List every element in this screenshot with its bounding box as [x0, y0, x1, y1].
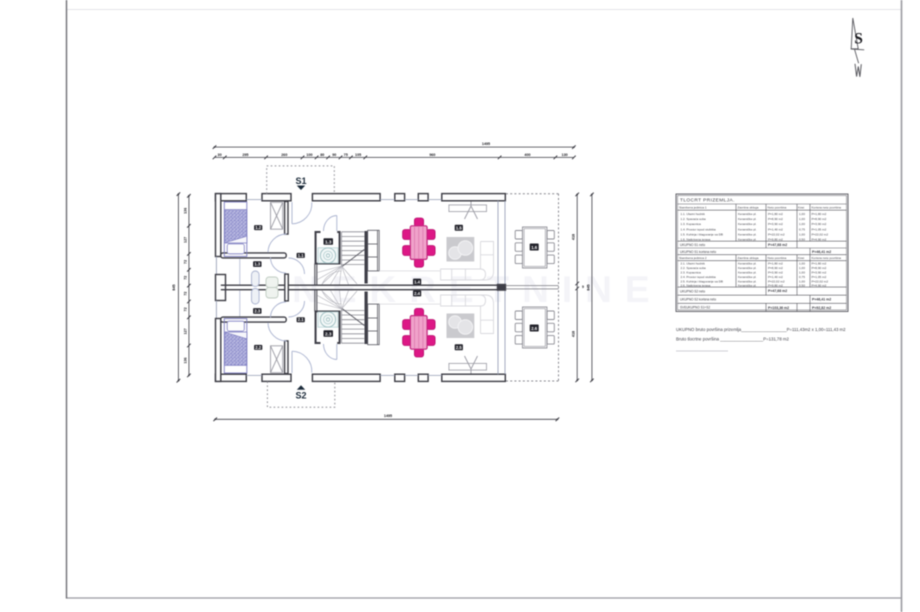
svg-text:1.5: 1.5	[456, 225, 462, 230]
svg-text:Keramičke pl.: Keramičke pl.	[738, 227, 757, 231]
svg-text:P=8,90 m2: P=8,90 m2	[812, 217, 827, 221]
svg-text:P=1,05 m2: P=1,05 m2	[812, 227, 827, 231]
svg-text:72: 72	[183, 292, 187, 296]
svg-text:P=9,80 m2: P=9,80 m2	[768, 284, 783, 288]
svg-text:960: 960	[429, 153, 435, 157]
svg-text:260: 260	[281, 153, 287, 157]
svg-text:418: 418	[572, 234, 576, 240]
svg-text:105: 105	[355, 153, 361, 157]
svg-text:72: 72	[183, 276, 187, 280]
svg-text:1.2: 1.2	[255, 225, 261, 230]
svg-text:P=1,05 m2: P=1,05 m2	[812, 275, 827, 279]
svg-text:2.6: 2.6	[531, 326, 537, 331]
svg-text:UKUPNO S2 neto: UKUPNO S2 neto	[680, 289, 705, 293]
svg-text:127: 127	[183, 237, 187, 243]
svg-text:2.2. Spavaća soba: 2.2. Spavaća soba	[681, 266, 707, 270]
svg-text:136: 136	[183, 208, 187, 214]
svg-text:2.5. Kuhinja i blagovanje sa D: 2.5. Kuhinja i blagovanje sa DB	[681, 279, 723, 283]
svg-text:P=47,68 m2: P=47,68 m2	[768, 243, 787, 247]
svg-text:100: 100	[306, 153, 312, 157]
svg-text:UKUPNO S1 neto: UKUPNO S1 neto	[680, 243, 705, 247]
svg-text:P=3,90 m2: P=3,90 m2	[812, 271, 827, 275]
svg-text:Keramičke pl.: Keramičke pl.	[738, 266, 757, 270]
svg-text:1.2. Spavaća soba: 1.2. Spavaća soba	[681, 217, 707, 221]
svg-text:1.5. Kuhinja i blagovanje sa D: 1.5. Kuhinja i blagovanje sa DB	[681, 233, 723, 237]
svg-text:UKUPNO S2 korisna neto: UKUPNO S2 korisna neto	[680, 297, 716, 301]
svg-text:UKUPNO S1 korisna neto: UKUPNO S1 korisna neto	[680, 250, 716, 254]
svg-text:1495: 1495	[384, 414, 392, 418]
svg-text:845: 845	[172, 284, 176, 290]
svg-text:P=46,41 m2: P=46,41 m2	[812, 298, 831, 302]
svg-text:1,00: 1,00	[799, 212, 805, 216]
svg-text:130: 130	[562, 153, 568, 157]
svg-text:Keramičke pl.: Keramičke pl.	[738, 284, 757, 288]
svg-text:80: 80	[320, 153, 324, 157]
svg-text:418: 418	[572, 331, 576, 337]
svg-text:2.3: 2.3	[325, 331, 332, 336]
svg-text:Završna obloga: Završna obloga	[738, 205, 759, 209]
svg-text:1,00: 1,00	[799, 279, 805, 283]
svg-text:9: 9	[582, 285, 584, 289]
svg-text:P=1,80 m2: P=1,80 m2	[768, 262, 783, 266]
svg-text:S1: S1	[295, 176, 306, 186]
svg-text:845: 845	[586, 284, 590, 290]
svg-text:P=9,80 m2: P=9,80 m2	[768, 238, 783, 242]
svg-text:2.2: 2.2	[255, 345, 261, 350]
svg-text:Stambena jedinica 1: Stambena jedinica 1	[679, 205, 707, 209]
svg-text:Korisna neto površina: Korisna neto površina	[812, 256, 842, 260]
svg-text:UKUPNO bruto površina prizemlj: UKUPNO bruto površina prizemlja_________…	[676, 327, 846, 332]
svg-text:P=92,82 m2: P=92,82 m2	[812, 306, 831, 310]
svg-text:136: 136	[183, 357, 187, 363]
svg-text:Kzat: Kzat	[798, 205, 804, 209]
svg-text:1.3: 1.3	[325, 239, 332, 244]
svg-text:P=3,90 m2: P=3,90 m2	[812, 222, 827, 226]
svg-text:1.1. Ulazni hodnik: 1.1. Ulazni hodnik	[681, 212, 706, 216]
svg-text:1,00: 1,00	[799, 271, 805, 275]
svg-text:P=8,90 m2: P=8,90 m2	[768, 266, 783, 270]
svg-text:Završna obloga: Završna obloga	[738, 256, 759, 260]
svg-text:0,75: 0,75	[799, 227, 805, 231]
svg-text:P=22,02 m2: P=22,02 m2	[768, 279, 785, 283]
svg-text:1,00: 1,00	[799, 233, 805, 237]
svg-text:1,00: 1,00	[799, 266, 805, 270]
svg-text:400: 400	[524, 153, 530, 157]
svg-text:S: S	[854, 31, 863, 48]
svg-text:Keramičke pl.: Keramičke pl.	[738, 222, 757, 226]
svg-text:P=103,36 m2: P=103,36 m2	[768, 306, 789, 310]
svg-text:P=1,80 m2: P=1,80 m2	[812, 212, 827, 216]
svg-text:Keramičke pl.: Keramičke pl.	[738, 212, 757, 216]
svg-text:72: 72	[183, 260, 187, 264]
svg-text:127: 127	[183, 328, 187, 334]
svg-text:Korisna neto površina: Korisna neto površina	[812, 205, 842, 209]
svg-text:P=46,41 m2: P=46,41 m2	[812, 250, 831, 254]
svg-text:1.1: 1.1	[298, 253, 304, 258]
svg-text:2.3: 2.3	[254, 308, 260, 313]
svg-text:1.3. Kupaonica: 1.3. Kupaonica	[681, 222, 702, 226]
svg-text:Keramičke pl.: Keramičke pl.	[738, 275, 757, 279]
svg-text:1.4: 1.4	[414, 279, 420, 284]
svg-text:1,00: 1,00	[799, 262, 805, 266]
svg-text:1.6. Natkrivena terasa: 1.6. Natkrivena terasa	[681, 238, 711, 242]
svg-text:1,00: 1,00	[799, 222, 805, 226]
svg-text:Kzat: Kzat	[798, 256, 804, 260]
svg-text:P=8,90 m2: P=8,90 m2	[768, 217, 783, 221]
svg-text:Neto površina: Neto površina	[768, 256, 787, 260]
svg-text:Keramičke pl.: Keramičke pl.	[738, 262, 757, 266]
svg-text:P=8,90 m2: P=8,90 m2	[812, 266, 827, 270]
svg-text:P=4,90 m2: P=4,90 m2	[812, 284, 827, 288]
svg-text:Keramičke pl.: Keramičke pl.	[738, 217, 757, 221]
svg-text:Stambena jedinica 2: Stambena jedinica 2	[679, 256, 707, 260]
svg-text:Bruto tlocrtne površina _____: Bruto tlocrtne površina ________________…	[676, 337, 789, 342]
svg-text:1.3: 1.3	[254, 262, 260, 267]
svg-text:P=3,90 m2: P=3,90 m2	[768, 271, 783, 275]
svg-text:2.4: 2.4	[414, 291, 420, 296]
svg-text:0,75: 0,75	[799, 275, 805, 279]
svg-text:1.4. Prostor ispod stubišta: 1.4. Prostor ispod stubišta	[681, 227, 717, 231]
svg-text:P=22,02 m2: P=22,02 m2	[812, 279, 829, 283]
svg-text:TLOCRT PRIZEMLJA.: TLOCRT PRIZEMLJA.	[680, 198, 735, 204]
svg-text:P=22,02 m2: P=22,02 m2	[768, 233, 785, 237]
svg-text:30: 30	[218, 153, 222, 157]
svg-text:P=47,68 m2: P=47,68 m2	[768, 289, 787, 293]
svg-text:295: 295	[242, 153, 248, 157]
svg-text:0,50: 0,50	[799, 238, 805, 242]
svg-text:Keramičke pl.: Keramičke pl.	[738, 233, 757, 237]
svg-text:0,50: 0,50	[799, 284, 805, 288]
svg-text:72: 72	[183, 307, 187, 311]
svg-text:SVEUKUPNO S1+S2: SVEUKUPNO S1+S2	[680, 306, 710, 310]
svg-text:2.4. Prostor ispod stubišta: 2.4. Prostor ispod stubišta	[681, 275, 717, 279]
svg-text:P=1,80 m2: P=1,80 m2	[812, 262, 827, 266]
svg-text:2.6. Natkrivena terasa: 2.6. Natkrivena terasa	[681, 284, 711, 288]
svg-text:P=4,90 m2: P=4,90 m2	[812, 238, 827, 242]
svg-text:P=3,90 m2: P=3,90 m2	[768, 222, 783, 226]
svg-text:2.1: 2.1	[298, 317, 304, 322]
svg-text:P=1,40 m2: P=1,40 m2	[768, 227, 783, 231]
svg-text:75: 75	[344, 153, 348, 157]
svg-text:1,00: 1,00	[799, 217, 805, 221]
svg-text:1.6: 1.6	[531, 245, 537, 250]
svg-text:2.3. Kupaonica: 2.3. Kupaonica	[681, 271, 702, 275]
svg-text:Keramičke pl.: Keramičke pl.	[738, 271, 757, 275]
svg-text:P=22,02 m2: P=22,02 m2	[812, 233, 829, 237]
svg-text:S2: S2	[295, 391, 306, 401]
svg-text:Keramičke pl.: Keramičke pl.	[738, 279, 757, 283]
svg-text:1495: 1495	[482, 142, 490, 146]
svg-text:Keramičke pl.: Keramičke pl.	[738, 238, 757, 242]
svg-text:2.1. Ulazni hodnik: 2.1. Ulazni hodnik	[681, 262, 706, 266]
svg-text:Neto površina: Neto površina	[768, 205, 787, 209]
svg-text:90: 90	[332, 153, 336, 157]
svg-text:P=1,80 m2: P=1,80 m2	[768, 212, 783, 216]
svg-text:2.5: 2.5	[456, 345, 462, 350]
svg-text:P=1,40 m2: P=1,40 m2	[768, 275, 783, 279]
